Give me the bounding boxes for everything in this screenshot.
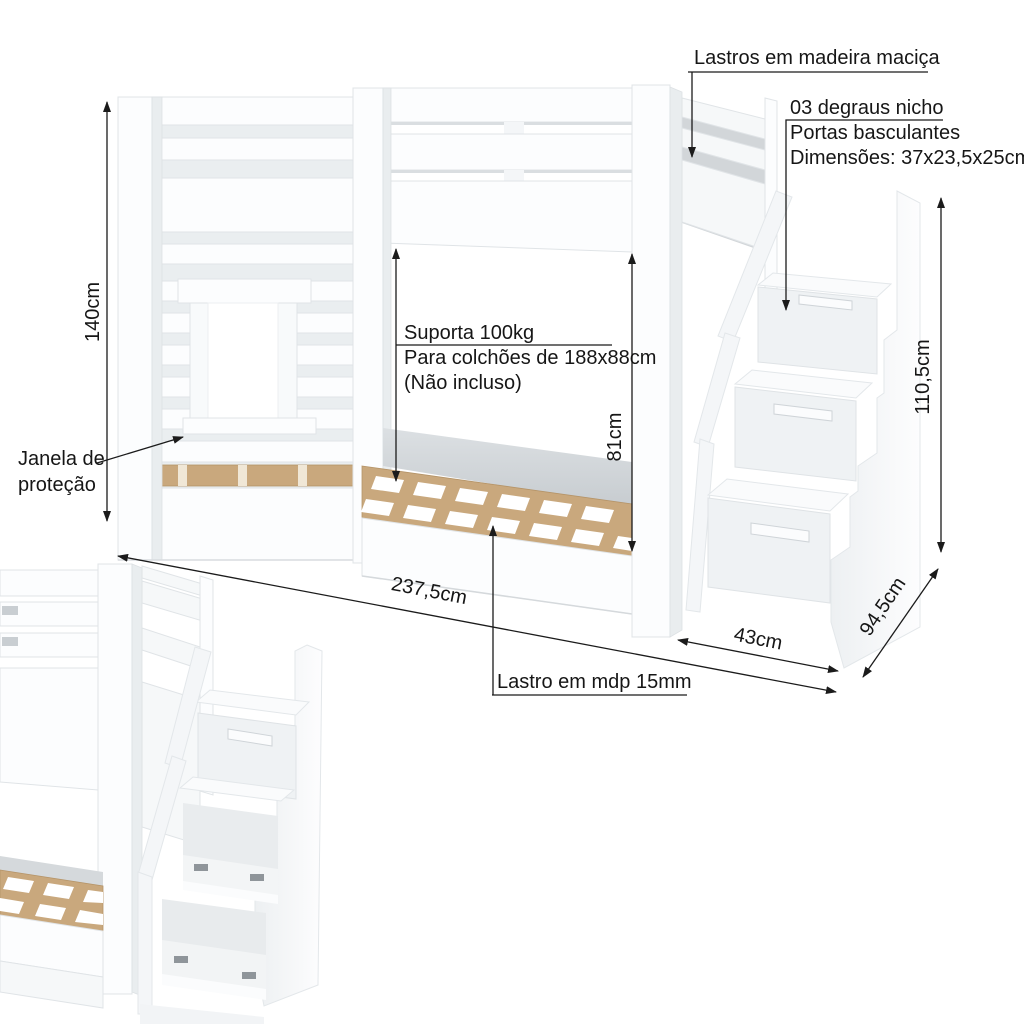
label-steps-2: Portas basculantes — [790, 122, 960, 144]
step2-door — [735, 387, 856, 481]
label-lastros: Lastros em madeira maciça — [694, 47, 941, 69]
hinge — [194, 864, 208, 871]
label-steps-3: Dimensões: 37x23,5x25cm — [790, 147, 1024, 169]
top-bunk-frame-band — [383, 181, 632, 252]
stair-base — [140, 1004, 264, 1024]
label-window-2: proteção — [18, 474, 96, 496]
hinge — [250, 874, 264, 881]
window-right-stile — [278, 303, 297, 420]
label-support-3: (Não incluso) — [404, 372, 522, 394]
label-support-2: Para colchões de 188x88cm — [404, 347, 656, 369]
secondary-view-closeup — [0, 564, 322, 1024]
top-bunk-guardrail — [383, 88, 632, 252]
window-left-stile — [190, 303, 208, 420]
headboard-wall — [118, 97, 362, 560]
window-opening — [208, 303, 278, 418]
guardrail-top — [383, 88, 632, 122]
dim-label-140cm: 140cm — [82, 282, 104, 342]
wall-bottom-band — [150, 488, 362, 560]
window-header — [178, 279, 311, 303]
guardrail-mid-post — [504, 122, 524, 134]
frame-band — [0, 668, 98, 790]
left-post — [118, 97, 152, 560]
label-mdp: Lastro em mdp 15mm — [497, 671, 692, 693]
label-steps-1: 03 degraus nicho — [790, 97, 943, 119]
diagram-canvas: Lastros em madeira maciça 03 degraus nic… — [0, 0, 1024, 1024]
guardrail-lower — [383, 134, 632, 170]
hinge — [242, 972, 256, 979]
label-support-1: Suporta 100kg — [404, 322, 534, 344]
open-niche-middle — [183, 803, 278, 904]
bunk-bed-dimension-diagram: Lastros em madeira maciça 03 degraus nic… — [0, 0, 1024, 1024]
stair-stringer-mid — [694, 333, 740, 447]
rail-cap — [0, 570, 98, 596]
protection-window — [178, 279, 316, 434]
hinge — [174, 956, 188, 963]
wall-cap — [150, 97, 362, 125]
dim-label-43cm: 43cm — [732, 624, 784, 655]
step3-door — [708, 498, 830, 603]
open-niche-bottom — [162, 899, 266, 1000]
window-sill — [183, 418, 316, 434]
label-window-1: Janela de — [18, 448, 105, 470]
dim-label-81cm: 81cm — [604, 413, 626, 462]
dim-label-110cm: 110,5cm — [912, 339, 934, 414]
